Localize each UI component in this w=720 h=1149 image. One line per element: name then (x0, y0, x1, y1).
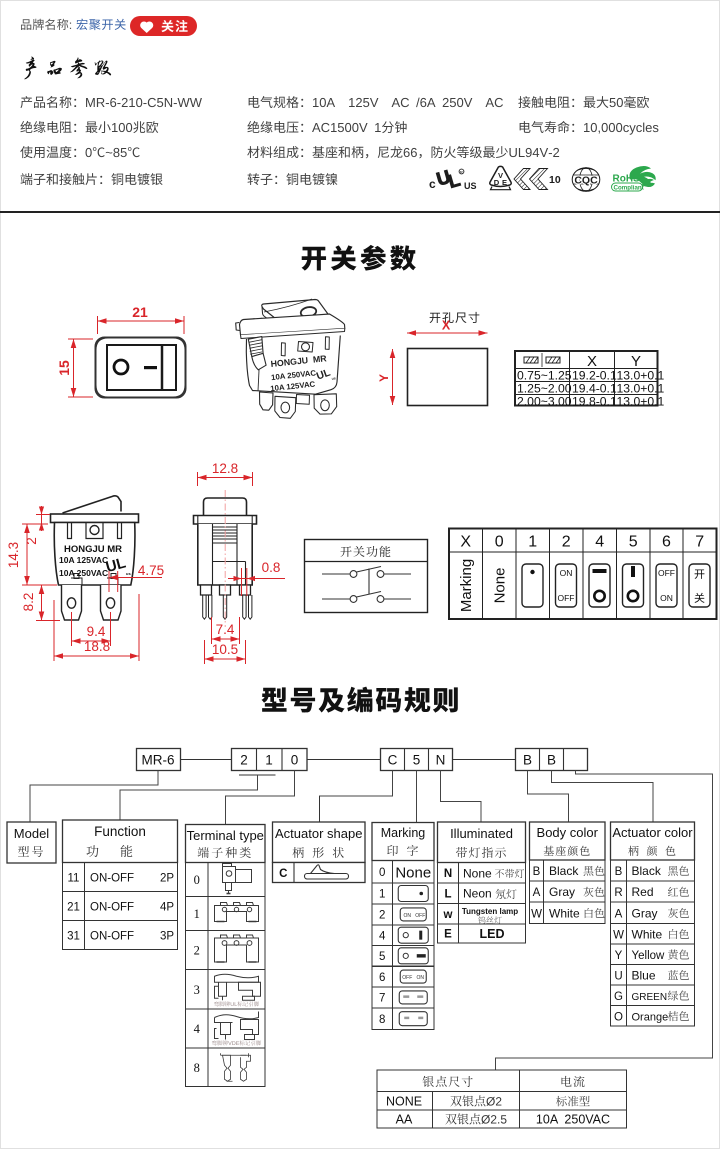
svg-text:MR-6: MR-6 (142, 753, 175, 768)
svg-text:11: 11 (68, 873, 80, 885)
svg-text:E: E (502, 178, 507, 187)
svg-text:None: None (492, 568, 509, 604)
svg-text:1: 1 (528, 534, 537, 551)
svg-text:W: W (531, 908, 542, 920)
svg-text:D: D (494, 178, 500, 187)
svg-text:12.8: 12.8 (212, 461, 238, 476)
svg-text:1: 1 (265, 753, 273, 768)
svg-text:OFF: OFF (415, 913, 425, 919)
svg-text:7: 7 (695, 534, 704, 551)
svg-text:0: 0 (379, 867, 385, 879)
svg-text:19.2-0.1: 19.2-0.1 (572, 368, 617, 382)
svg-text:U: U (614, 970, 622, 982)
svg-text:0: 0 (194, 873, 200, 887)
svg-text:NONE: NONE (386, 1095, 422, 1109)
svg-text:CQC: CQC (574, 175, 598, 187)
svg-text:7.4: 7.4 (216, 622, 235, 637)
svg-text:White: White (549, 906, 580, 920)
svg-text:Function: Function (94, 824, 146, 839)
svg-text:3P: 3P (160, 931, 174, 943)
svg-text:LED: LED (480, 927, 505, 941)
svg-text:Neon: Neon (463, 887, 492, 901)
svg-text:31: 31 (67, 931, 80, 943)
svg-text:5: 5 (629, 534, 638, 551)
svg-text:X: X (460, 534, 471, 551)
svg-text:Tungsten lamp: Tungsten lamp (462, 907, 518, 916)
svg-text:1: 1 (379, 889, 385, 901)
svg-text:C: C (279, 868, 287, 880)
svg-text:0.75~1.25: 0.75~1.25 (517, 368, 572, 382)
svg-text:4P: 4P (160, 902, 174, 914)
svg-text:Orange: Orange (632, 1011, 669, 1023)
svg-text:19.8-0.1: 19.8-0.1 (572, 394, 617, 408)
svg-text:N: N (444, 868, 452, 880)
svg-text:Illuminated: Illuminated (450, 826, 513, 841)
svg-text:7: 7 (379, 993, 385, 1005)
svg-text:13.0+0.1: 13.0+0.1 (617, 381, 665, 395)
svg-text:O: O (614, 1011, 623, 1023)
svg-text:us: us (126, 571, 131, 576)
svg-text:A: A (533, 887, 541, 899)
svg-text:2: 2 (194, 944, 200, 958)
svg-text:6: 6 (662, 534, 671, 551)
svg-text:HONGJU MR: HONGJU MR (64, 544, 122, 555)
svg-text:ON: ON (417, 975, 425, 981)
svg-text:2: 2 (379, 910, 385, 922)
svg-text:19.4-0.1: 19.4-0.1 (572, 381, 617, 395)
svg-text:Terminal type: Terminal type (187, 828, 264, 843)
svg-text:N: N (436, 753, 446, 768)
svg-text:2.00~3.00: 2.00~3.00 (517, 394, 572, 408)
svg-text:Model: Model (14, 826, 50, 841)
svg-text:0: 0 (495, 534, 504, 551)
svg-text:13.0+0.1: 13.0+0.1 (617, 394, 665, 408)
svg-text:B: B (533, 866, 541, 878)
svg-text:8: 8 (194, 1061, 200, 1075)
svg-text:4.75: 4.75 (138, 563, 164, 578)
svg-text:5: 5 (413, 753, 421, 768)
svg-text:None: None (463, 866, 492, 880)
svg-text:10A 250VAC: 10A 250VAC (59, 568, 108, 578)
svg-text:Black: Black (549, 864, 579, 878)
svg-text:2P: 2P (160, 873, 174, 885)
svg-text:10.5: 10.5 (212, 642, 238, 657)
svg-text:21: 21 (132, 304, 148, 320)
svg-text:AA: AA (396, 1113, 413, 1127)
svg-text:14.3: 14.3 (6, 542, 21, 568)
svg-text:B: B (523, 753, 532, 768)
svg-text:Black: Black (632, 864, 662, 878)
svg-text:Y: Y (377, 374, 391, 382)
svg-text:B: B (547, 753, 556, 768)
svg-text:ON: ON (560, 568, 573, 578)
svg-text:18.8: 18.8 (84, 639, 110, 654)
svg-text:Red: Red (632, 885, 654, 899)
svg-text:5: 5 (379, 951, 385, 963)
svg-text:1.25~2.00: 1.25~2.00 (517, 381, 572, 395)
svg-text:X: X (442, 319, 451, 333)
svg-text:8: 8 (379, 1014, 385, 1026)
svg-text:Marking: Marking (381, 826, 426, 840)
svg-text:A: A (615, 908, 623, 920)
svg-text:ON: ON (404, 913, 412, 919)
svg-text:B: B (615, 866, 623, 878)
svg-text:Y: Y (615, 950, 623, 962)
svg-text:2: 2 (24, 537, 39, 545)
svg-text:White: White (632, 927, 663, 941)
svg-text:10: 10 (549, 174, 561, 186)
svg-text:OFF: OFF (558, 593, 575, 603)
svg-text:8.2: 8.2 (21, 593, 36, 612)
svg-text:Marking: Marking (458, 559, 475, 612)
svg-text:0.8: 0.8 (262, 560, 281, 575)
svg-text:c: c (429, 177, 436, 191)
svg-text:ON-OFF: ON-OFF (90, 931, 134, 943)
svg-text:Compliant: Compliant (614, 185, 644, 192)
svg-text:Gray: Gray (632, 906, 658, 920)
svg-text:13.0+0.1: 13.0+0.1 (617, 368, 665, 382)
svg-text:ON-OFF: ON-OFF (90, 873, 134, 885)
svg-text:G: G (614, 991, 623, 1003)
svg-text:Blue: Blue (632, 968, 656, 982)
svg-text:6: 6 (379, 972, 385, 984)
svg-text:Actuator color: Actuator color (612, 825, 693, 840)
svg-text:2: 2 (562, 534, 571, 551)
svg-text:ON: ON (660, 593, 673, 603)
svg-text:E: E (444, 929, 452, 941)
svg-text:15: 15 (56, 360, 72, 376)
svg-text:Yellow: Yellow (632, 950, 666, 962)
svg-text:10A 125VAC: 10A 125VAC (59, 555, 108, 565)
svg-text:w: w (443, 909, 453, 921)
svg-text:OFF: OFF (402, 975, 412, 981)
svg-text:2: 2 (240, 753, 248, 768)
svg-text:GREEN: GREEN (632, 992, 668, 1003)
svg-text:R: R (614, 887, 622, 899)
svg-text:ON-OFF: ON-OFF (90, 902, 134, 914)
svg-text:Body color: Body color (537, 825, 599, 840)
svg-text:10A 250VAC: 10A 250VAC (536, 1113, 610, 1127)
svg-text:4: 4 (595, 534, 604, 551)
svg-text:3: 3 (194, 983, 200, 997)
svg-text:None: None (395, 864, 431, 881)
svg-text:L: L (444, 888, 451, 900)
svg-text:4: 4 (194, 1022, 201, 1036)
svg-text:OFF: OFF (658, 568, 675, 578)
svg-text:W: W (613, 929, 624, 941)
svg-text:us: us (331, 376, 336, 380)
svg-text:US: US (464, 181, 477, 191)
svg-text:9.4: 9.4 (87, 624, 106, 639)
svg-text:Gray: Gray (549, 885, 575, 899)
svg-text:21: 21 (67, 902, 80, 914)
svg-text:Actuator shape: Actuator shape (275, 826, 362, 841)
svg-text:0: 0 (291, 753, 299, 768)
svg-text:1: 1 (194, 907, 200, 921)
svg-text:4: 4 (379, 930, 386, 942)
svg-text:C: C (388, 753, 398, 768)
